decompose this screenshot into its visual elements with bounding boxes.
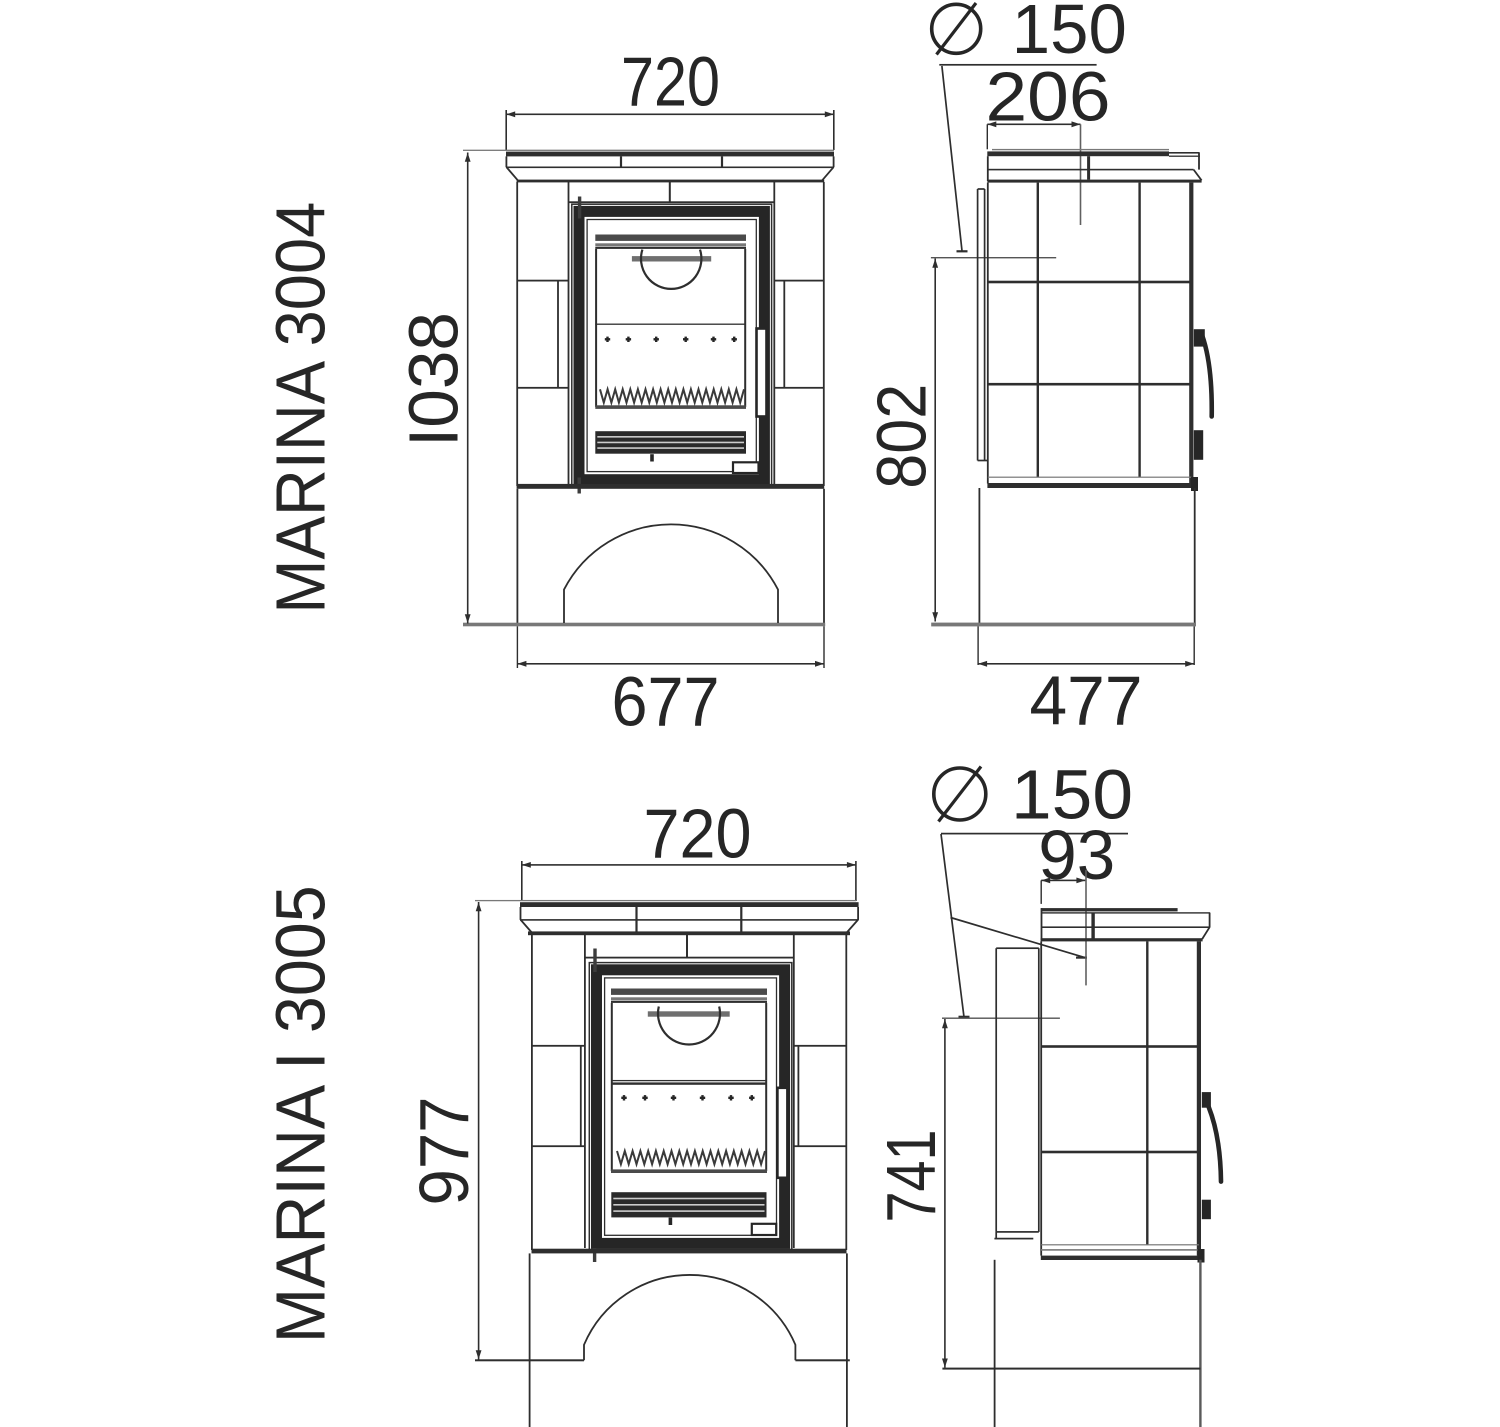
svg-text:802: 802 [863,384,941,489]
svg-text:677: 677 [612,663,720,741]
svg-text:977: 977 [405,1097,483,1206]
svg-text:MARINA I 3005: MARINA I 3005 [262,885,340,1343]
svg-text:720: 720 [621,43,720,121]
svg-text:477: 477 [1030,662,1143,740]
svg-text:720: 720 [644,795,752,873]
svg-text:I038: I038 [395,312,473,447]
svg-text:MARINA 3004: MARINA 3004 [262,202,340,614]
svg-text:741: 741 [872,1130,950,1223]
